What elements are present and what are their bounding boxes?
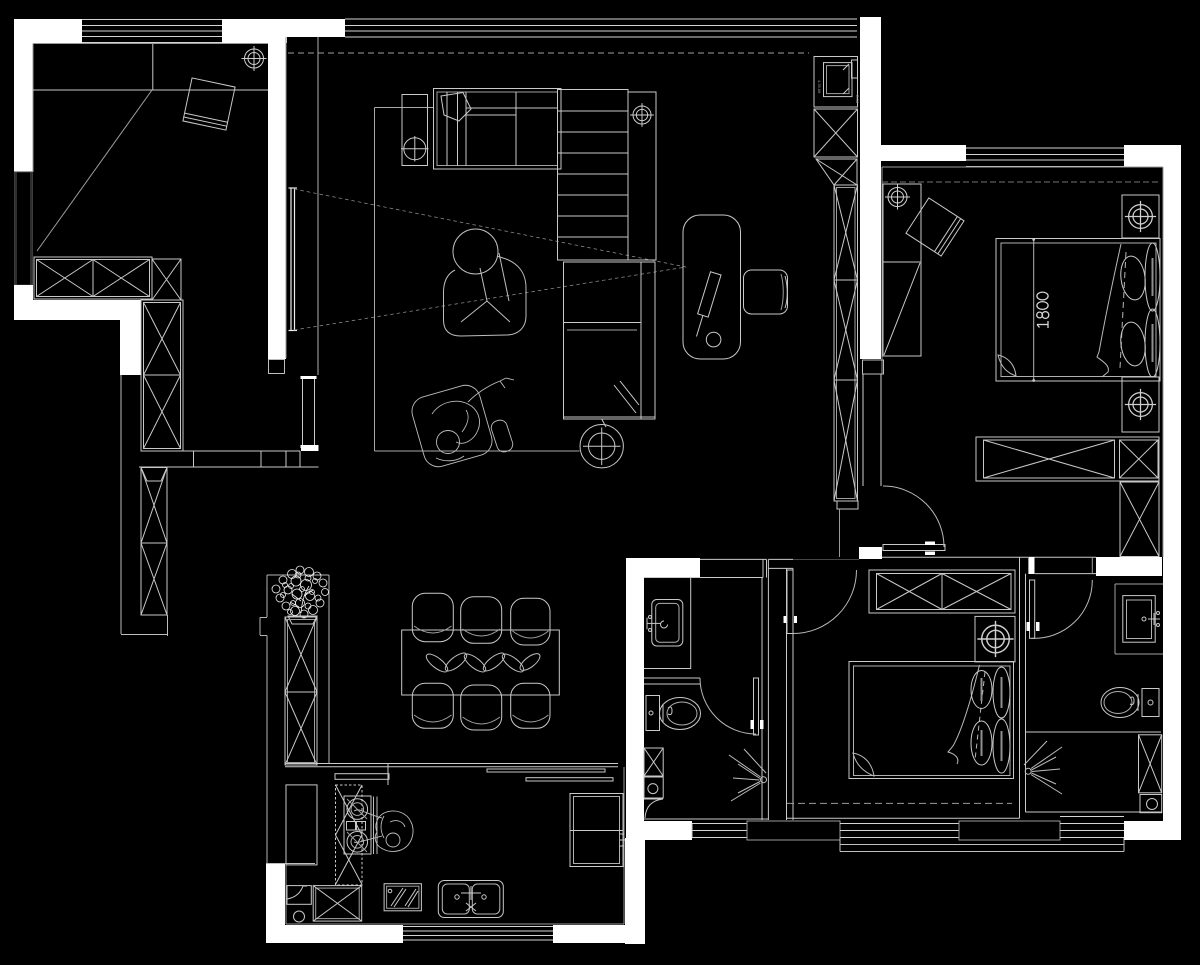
- svg-text:B.08: B.08: [855, 95, 860, 104]
- svg-text:4.35.88: 4.35.88: [817, 80, 822, 94]
